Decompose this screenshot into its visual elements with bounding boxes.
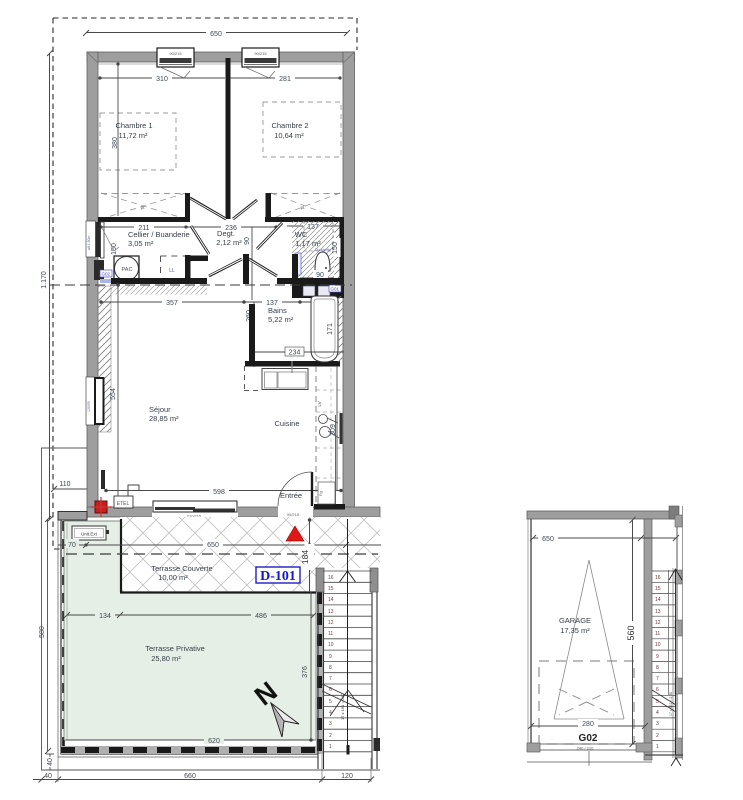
svg-text:9: 9 — [329, 654, 332, 660]
svg-text:70: 70 — [68, 542, 76, 549]
svg-text:486: 486 — [255, 613, 267, 620]
svg-text:LL: LL — [169, 268, 175, 274]
svg-text:620: 620 — [208, 738, 220, 745]
svg-text:14: 14 — [328, 597, 334, 603]
svg-text:2: 2 — [329, 733, 332, 739]
svg-text:134: 134 — [99, 613, 111, 620]
svg-text:pl.: pl. — [301, 205, 306, 210]
svg-text:Fg: Fg — [318, 491, 323, 496]
svg-text:pl.: pl. — [141, 205, 146, 210]
svg-text:Entrée: Entrée — [280, 491, 302, 500]
svg-text:660: 660 — [184, 773, 196, 780]
svg-text:3: 3 — [656, 721, 659, 727]
svg-text:17 x 161 = 280: 17 x 161 = 280 — [340, 693, 345, 720]
svg-text:11: 11 — [328, 631, 333, 637]
svg-text:598: 598 — [213, 489, 225, 496]
svg-text:15: 15 — [655, 586, 661, 592]
svg-text:7: 7 — [329, 676, 332, 682]
svg-text:281: 281 — [279, 76, 291, 83]
svg-text:13: 13 — [328, 609, 334, 615]
svg-text:376: 376 — [302, 666, 309, 678]
svg-text:554: 554 — [110, 388, 117, 400]
svg-text:Chambre 1: Chambre 1 — [115, 121, 152, 130]
svg-text:3: 3 — [329, 721, 332, 727]
svg-text:D-101: D-101 — [260, 569, 296, 584]
svg-text:95/215: 95/215 — [287, 512, 300, 517]
svg-text:150: 150 — [332, 242, 339, 254]
svg-text:13: 13 — [655, 609, 661, 615]
svg-text:GARAGE: GARAGE — [559, 616, 591, 625]
svg-text:12: 12 — [328, 620, 334, 626]
svg-text:Bains: Bains — [268, 306, 287, 315]
svg-text:Cuisine: Cuisine — [274, 419, 299, 428]
svg-text:120/95: 120/95 — [87, 401, 91, 412]
svg-text:16: 16 — [328, 575, 334, 581]
svg-text:8: 8 — [329, 665, 332, 671]
svg-text:211: 211 — [138, 225, 149, 232]
svg-text:90: 90 — [244, 237, 251, 245]
svg-text:17 x 161 = 2,80: 17 x 161 = 2,80 — [669, 692, 673, 716]
svg-text:10,64 m²: 10,64 m² — [274, 131, 304, 140]
svg-text:15: 15 — [328, 586, 334, 592]
svg-text:Cellier / Buanderie: Cellier / Buanderie — [128, 230, 190, 239]
svg-text:650: 650 — [542, 536, 554, 543]
svg-text:10: 10 — [655, 642, 661, 648]
svg-text:650: 650 — [207, 542, 219, 549]
svg-text:8: 8 — [656, 665, 659, 671]
svg-text:PAC: PAC — [122, 267, 133, 273]
svg-text:1: 1 — [329, 744, 332, 750]
svg-text:120: 120 — [341, 773, 353, 780]
svg-text:5,22 m²: 5,22 m² — [268, 315, 294, 324]
svg-text:650: 650 — [210, 31, 222, 38]
svg-text:184: 184 — [300, 550, 310, 564]
svg-text:560: 560 — [626, 625, 636, 640]
svg-text:11,72 m²: 11,72 m² — [118, 131, 148, 140]
svg-text:580: 580 — [39, 626, 46, 638]
svg-text:Terrasse Privative: Terrasse Privative — [145, 644, 205, 653]
svg-text:357: 357 — [166, 300, 178, 307]
svg-text:G01: G01 — [331, 287, 340, 292]
svg-text:90/215: 90/215 — [254, 51, 267, 56]
svg-text:1: 1 — [656, 744, 659, 750]
svg-text:90: 90 — [316, 272, 324, 279]
svg-text:240 / 210: 240 / 210 — [577, 746, 594, 751]
svg-text:40: 40 — [47, 758, 54, 766]
svg-text:11: 11 — [655, 631, 660, 637]
svg-text:1.170: 1.170 — [41, 271, 48, 289]
svg-text:234: 234 — [289, 350, 301, 357]
svg-text:G02: G02 — [579, 733, 598, 744]
svg-text:LV: LV — [317, 401, 322, 406]
svg-text:5: 5 — [329, 699, 332, 705]
svg-text:309: 309 — [330, 424, 337, 436]
svg-text:Douchette: Douchette — [315, 248, 331, 252]
svg-text:WC: WC — [295, 230, 308, 239]
svg-text:16: 16 — [655, 575, 661, 581]
svg-text:40: 40 — [44, 773, 52, 780]
svg-text:Chambre 2: Chambre 2 — [271, 121, 308, 130]
svg-text:7: 7 — [656, 676, 659, 682]
svg-text:12: 12 — [655, 620, 661, 626]
svg-text:Terrasse Couverte: Terrasse Couverte — [151, 564, 212, 573]
svg-text:ETEL: ETEL — [117, 501, 130, 507]
svg-text:14: 14 — [655, 597, 661, 603]
svg-text:Degt.: Degt. — [217, 229, 235, 238]
svg-text:6: 6 — [656, 687, 659, 693]
svg-text:1,17 m²: 1,17 m² — [295, 239, 321, 248]
svg-text:9: 9 — [656, 654, 659, 660]
svg-text:4: 4 — [656, 710, 659, 716]
svg-text:90/215: 90/215 — [169, 51, 182, 56]
svg-text:380: 380 — [112, 137, 119, 149]
svg-text:10,00 m²: 10,00 m² — [158, 573, 188, 582]
svg-text:110: 110 — [59, 481, 70, 488]
svg-text:10: 10 — [328, 642, 334, 648]
svg-text:28,85 m²: 28,85 m² — [149, 414, 179, 423]
svg-text:Unit.Ext: Unit.Ext — [81, 532, 98, 537]
svg-text:171: 171 — [327, 323, 334, 335]
svg-text:alt.1,50m: alt.1,50m — [87, 236, 91, 250]
svg-text:280: 280 — [582, 721, 594, 728]
svg-text:25,80 m²: 25,80 m² — [151, 654, 181, 663]
svg-text:2: 2 — [656, 733, 659, 739]
svg-text:310: 310 — [156, 76, 168, 83]
svg-text:17,35 m²: 17,35 m² — [560, 626, 590, 635]
svg-text:2,12 m²: 2,12 m² — [216, 238, 242, 247]
svg-text:3,05 m²: 3,05 m² — [128, 239, 154, 248]
svg-text:Séjour: Séjour — [149, 405, 171, 414]
svg-text:G02: G02 — [102, 272, 111, 277]
